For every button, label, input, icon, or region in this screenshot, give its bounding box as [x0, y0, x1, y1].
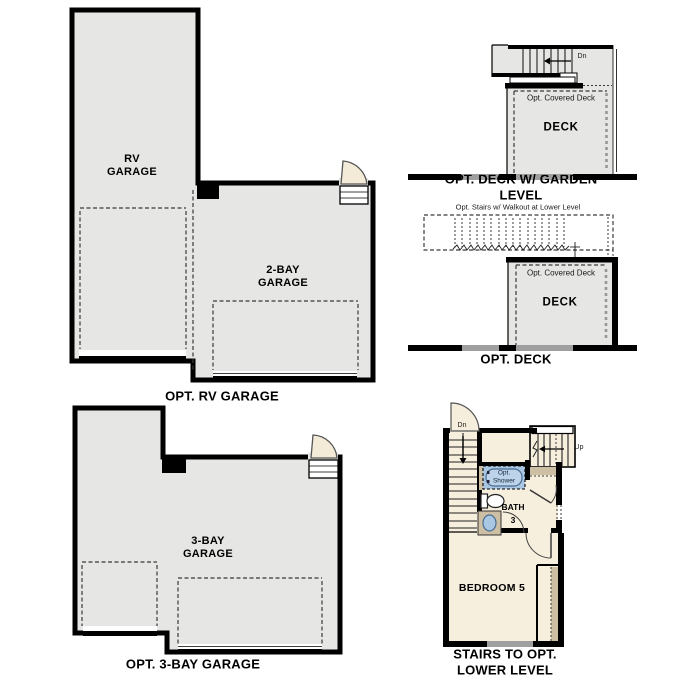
bedroom-5-label: BEDROOM 5	[459, 582, 525, 594]
edge-double-line	[613, 45, 617, 174]
door-swing-icon	[308, 435, 338, 462]
floorplan-drawing	[0, 0, 687, 687]
steps-outline	[340, 186, 368, 204]
three-bay-caption: OPT. 3-BAY GARAGE	[126, 656, 260, 672]
rv-garage-label: RV GARAGE	[107, 153, 157, 179]
stairs-walkout-note: Opt. Stairs w/ Walkout at Lower Level	[456, 204, 581, 213]
door-swing-icon	[339, 161, 368, 187]
right-wall-mid	[556, 462, 562, 505]
deck-caption: OPT. DECK	[480, 351, 551, 367]
optional-stairs-dashed-icon	[424, 215, 613, 258]
two-bay-door-line	[213, 376, 357, 382]
garage-door-icon	[83, 626, 157, 636]
rv-door-gap	[79, 350, 186, 356]
garage-outline	[75, 408, 340, 652]
up-label: Up	[575, 444, 584, 452]
faucet-mark	[487, 480, 490, 483]
dashed-treads	[455, 218, 564, 247]
opt-deck-plan	[408, 215, 637, 351]
deck-garden-caption: OPT. DECK W/ GARDEN LEVEL	[438, 172, 604, 203]
deck-top-wall	[505, 83, 583, 89]
rv-garage-caption: OPT. RV GARAGE	[165, 388, 279, 404]
rv-door-line	[79, 356, 186, 362]
closet-shelf	[551, 567, 558, 641]
stair-bottom-wall	[492, 73, 560, 77]
deck-right-wall	[612, 257, 618, 351]
door-leaf	[341, 161, 367, 184]
bath-label: BATH	[502, 503, 525, 513]
break-line	[453, 245, 569, 250]
window-icon	[516, 345, 573, 351]
deck-label: DECK	[544, 121, 579, 134]
stair-strip	[577, 77, 613, 84]
hall-closet-wall	[525, 460, 530, 480]
down-label: Dn	[458, 422, 467, 430]
window-icon	[510, 77, 575, 83]
stair-dashed-right-edge	[608, 217, 613, 258]
rv-garage-outline	[72, 10, 373, 380]
covered-deck-label: Opt. Covered Deck	[527, 93, 595, 102]
opt-rv-garage-plan	[72, 10, 373, 382]
wall-jog	[551, 528, 562, 533]
steps-icon	[309, 460, 338, 478]
lower-level-caption: STAIRS TO OPT. LOWER LEVEL	[453, 647, 556, 678]
lower-level-stairs-plan	[443, 403, 575, 647]
understair-wall	[530, 467, 556, 475]
right-wall-lower	[558, 533, 564, 647]
sink-icon	[478, 511, 501, 535]
sink-basin	[483, 515, 496, 531]
right-door-line	[178, 649, 322, 654]
opt-3-bay-garage-plan	[75, 408, 340, 654]
floorplan-options-sheet: RV GARAGE 2-BAY GARAGE OPT. RV GARAGE Dn…	[0, 0, 687, 687]
left-wall	[443, 428, 449, 647]
steps-outline	[309, 460, 338, 478]
garage-door-icon	[79, 350, 186, 362]
wall-notch	[197, 182, 219, 199]
stair-dashed-outline	[424, 215, 613, 250]
stair-cross-mark	[570, 242, 580, 257]
left-door-gap	[83, 626, 157, 631]
deck-top-wall	[506, 257, 618, 263]
three-bay-garage-label: 3-BAY GARAGE	[183, 535, 233, 561]
faucet-mark	[487, 471, 490, 474]
steps-icon	[340, 186, 368, 204]
bath-number: 3	[511, 516, 516, 526]
up-landing	[532, 427, 573, 434]
deck-label: DECK	[543, 296, 578, 309]
opt-shower-label: Opt. Shower	[493, 470, 515, 485]
garage-door-icon	[178, 644, 322, 654]
door-leaf	[311, 435, 337, 458]
garage-door-icon	[213, 371, 357, 382]
covered-deck-label: Opt. Covered Deck	[527, 268, 595, 277]
two-bay-garage-label: 2-BAY GARAGE	[258, 264, 308, 290]
window-icon	[462, 345, 499, 351]
stair-top-wall	[508, 45, 613, 49]
down-label: Dn	[578, 53, 587, 61]
opt-deck-garden-plan	[408, 45, 637, 180]
wall-notch	[162, 456, 186, 473]
left-door-line	[83, 631, 157, 636]
